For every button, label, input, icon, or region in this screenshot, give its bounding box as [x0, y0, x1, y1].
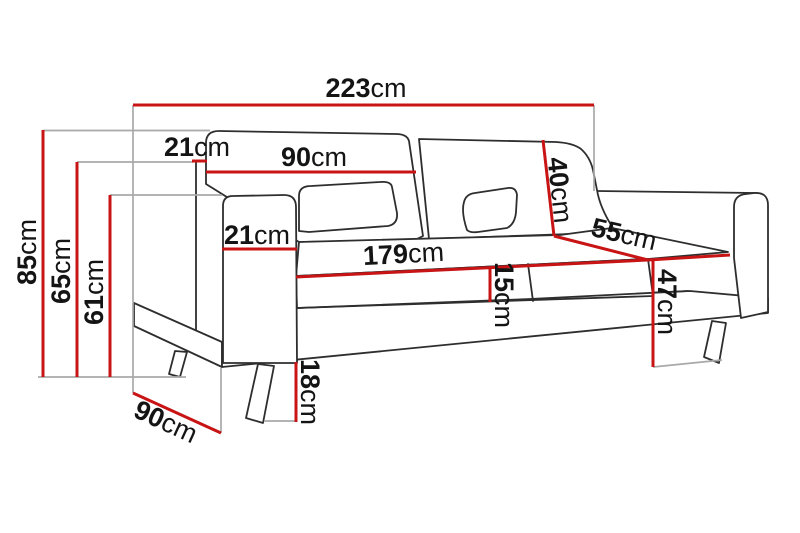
- dim-label-seat-width: 179cm: [362, 237, 445, 271]
- diagram-canvas: 223cm 85cm 65cm 61cm 21cm 90cm 40cm 21cm…: [0, 0, 800, 533]
- back-frame-top-right-edge: [597, 191, 756, 193]
- dim-label-back-frame-height: 65cm: [46, 238, 76, 304]
- sofa-dimension-diagram: 223cm 85cm 65cm 61cm 21cm 90cm 40cm 21cm…: [0, 0, 800, 533]
- leg-back-left: [169, 351, 187, 377]
- lumbar-pillow-right: [463, 188, 517, 232]
- dim-label-total-height: 85cm: [12, 219, 42, 285]
- dim-label-seat-height: 47cm: [652, 269, 682, 335]
- leg-front-left: [246, 364, 274, 423]
- dim-label-leg-height: 18cm: [295, 359, 325, 425]
- dim-label-overall-width: 223cm: [325, 73, 406, 103]
- leg-front-right: [704, 321, 726, 363]
- dim-label-armrest-width: 21cm: [224, 220, 290, 250]
- ext-seat-height-floor: [653, 360, 722, 367]
- lumbar-pillow-left: [299, 182, 397, 232]
- dim-label-armrest-height: 61cm: [79, 259, 109, 325]
- dim-label-seat-cushion-thickness: 15cm: [489, 262, 519, 328]
- dim-label-back-cushion-width: 90cm: [281, 142, 347, 172]
- dim-label-overall-depth: 90cm: [129, 394, 202, 449]
- armrest-right: [734, 193, 768, 318]
- back-cushion-right: [419, 139, 613, 239]
- dim-label-backrest-top-depth: 21cm: [164, 132, 230, 162]
